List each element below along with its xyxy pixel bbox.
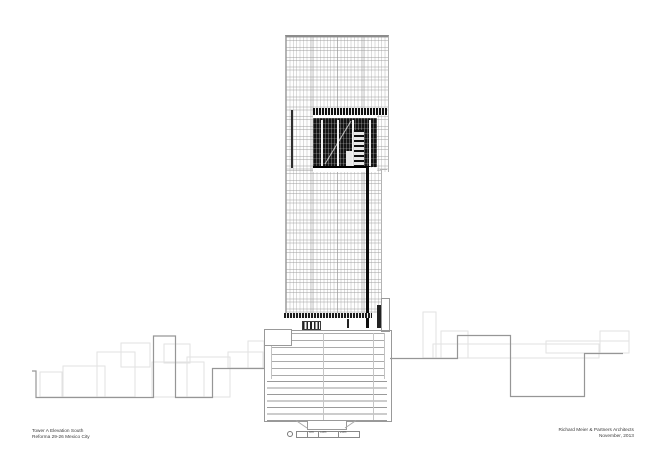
scale-tick bbox=[318, 432, 319, 437]
column-behind-glazing bbox=[291, 110, 293, 168]
background-buildings-left bbox=[40, 341, 264, 397]
podium-column-line bbox=[323, 333, 324, 420]
scale-zero-circle bbox=[287, 431, 293, 437]
podium-lower-louvers bbox=[267, 381, 387, 421]
context-skyline-right bbox=[390, 336, 623, 397]
project-location: Reforma 29-26 Mexico City bbox=[32, 434, 90, 440]
context-skyline-left bbox=[32, 336, 264, 398]
side-shaft-dark bbox=[377, 305, 381, 328]
core-panel bbox=[346, 151, 352, 166]
ground-floor-grille bbox=[302, 321, 321, 330]
elevation-drawing-sheet: Tower A Elevation South Reforma 29-26 Me… bbox=[0, 0, 650, 459]
podium-column-line bbox=[373, 333, 374, 420]
title-block-left: Tower A Elevation South Reforma 29-26 Me… bbox=[32, 428, 90, 441]
entrance-canopy bbox=[307, 420, 347, 430]
facade-reveal-shadow-line bbox=[366, 167, 369, 328]
ground-floor-mullion bbox=[347, 319, 349, 328]
background-buildings-right bbox=[423, 312, 629, 358]
tower-setback-step bbox=[380, 169, 387, 170]
title-block-right: Richard Meier & Partners Architects Nove… bbox=[559, 427, 634, 440]
side-shaft-outline bbox=[381, 298, 390, 332]
podium-rooftop-box bbox=[264, 329, 292, 346]
scale-tick bbox=[307, 432, 308, 437]
base-louver-band bbox=[284, 313, 372, 318]
scale-label-5m: 5m bbox=[309, 431, 314, 434]
scale-rule: 5m 10m 20m bbox=[296, 431, 360, 438]
mechanical-louver-band bbox=[313, 108, 387, 115]
facade-column bbox=[321, 120, 323, 166]
drawing-date: November, 2013 bbox=[559, 433, 634, 439]
scale-label-10m: 10m bbox=[320, 431, 326, 434]
scale-tick bbox=[338, 432, 339, 437]
facade-column bbox=[369, 120, 371, 166]
elevator-core-detail bbox=[353, 130, 364, 166]
graphic-scale-bar: 5m 10m 20m bbox=[287, 430, 360, 438]
facade-column bbox=[337, 120, 339, 166]
scale-label-20m: 20m bbox=[340, 431, 346, 434]
